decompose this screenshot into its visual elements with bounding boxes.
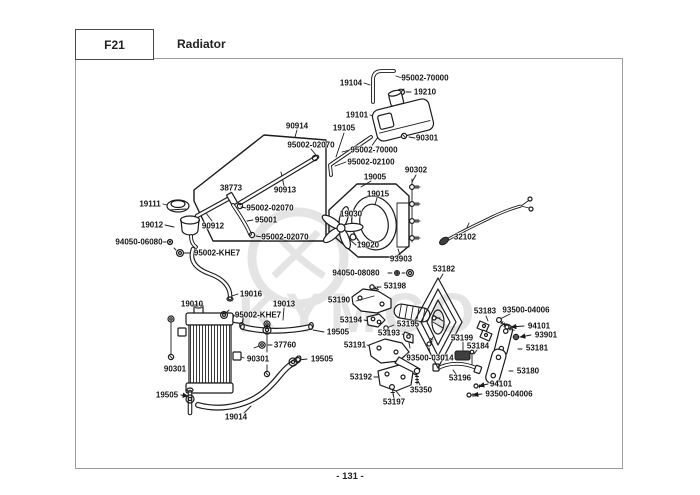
water-pipe-drawing <box>197 155 318 237</box>
thermo-sensor-icon <box>254 342 265 348</box>
hook-bracket-drawing <box>404 332 413 348</box>
filler-neck-drawing <box>181 216 200 247</box>
section-code: F21 <box>104 38 125 52</box>
clip-bracket-drawing <box>477 321 492 341</box>
grille-pad-drawing <box>455 351 470 360</box>
small-plate-drawing <box>367 314 385 327</box>
stay-lower-drawing <box>484 348 507 386</box>
page-title: Radiator <box>177 29 226 58</box>
tank-bolt-icon <box>401 133 406 138</box>
sensor-wire-drawing <box>438 197 533 246</box>
catalog-page: KYMCO F21 Radiator <box>0 0 700 495</box>
screw-icon <box>467 393 478 397</box>
nut-icon <box>513 334 518 339</box>
thermostat-bracket-drawing <box>352 289 440 323</box>
neck-bolt-icon <box>168 240 173 245</box>
radiator-cap-drawing <box>167 200 189 212</box>
page-number: - 131 - <box>0 471 700 482</box>
upper-hose-drawing <box>192 249 233 301</box>
diagram-canvas <box>0 0 700 495</box>
stay-strip-drawing <box>433 364 482 374</box>
middle-hose-drawing <box>239 322 314 334</box>
screw-icon <box>474 384 484 389</box>
section-code-box: F21 <box>75 29 154 60</box>
hose-clamp-icon <box>174 248 183 256</box>
mount-plate-drawing <box>378 365 413 396</box>
pad-pin-icon <box>470 350 474 365</box>
fan-motor-icon <box>350 234 356 240</box>
radiator-drawing <box>178 304 243 393</box>
shroud-screws-drawing <box>410 179 420 242</box>
radiator-bolts-left-drawing <box>168 316 174 360</box>
